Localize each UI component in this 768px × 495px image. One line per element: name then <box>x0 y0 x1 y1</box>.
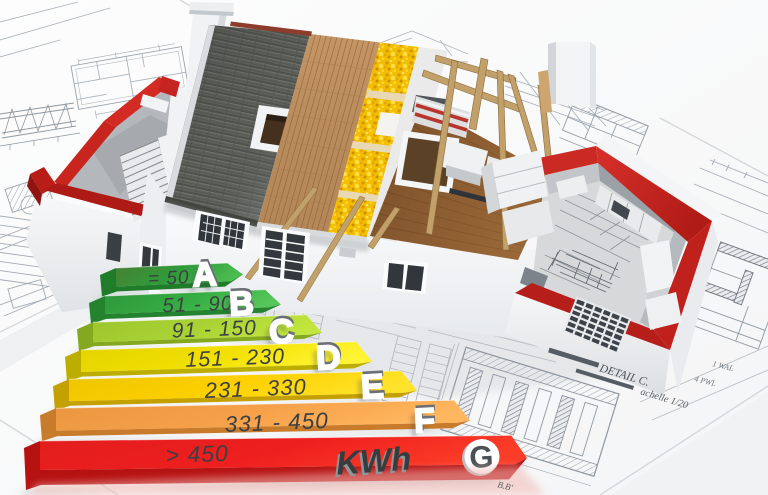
svg-text:KWh: KWh <box>335 439 413 481</box>
svg-text:F: F <box>413 401 436 440</box>
svg-text:D: D <box>315 338 342 377</box>
svg-text:E: E <box>360 367 385 406</box>
svg-text:151 - 230: 151 - 230 <box>185 344 286 372</box>
svg-text:91 - 150: 91 - 150 <box>171 316 257 342</box>
svg-text:231 - 330: 231 - 330 <box>203 374 307 403</box>
svg-text:> 450: > 450 <box>165 440 229 468</box>
svg-text:A: A <box>191 255 218 294</box>
svg-text:= 50: = 50 <box>148 267 190 290</box>
svg-text:331 - 450: 331 - 450 <box>224 408 329 437</box>
